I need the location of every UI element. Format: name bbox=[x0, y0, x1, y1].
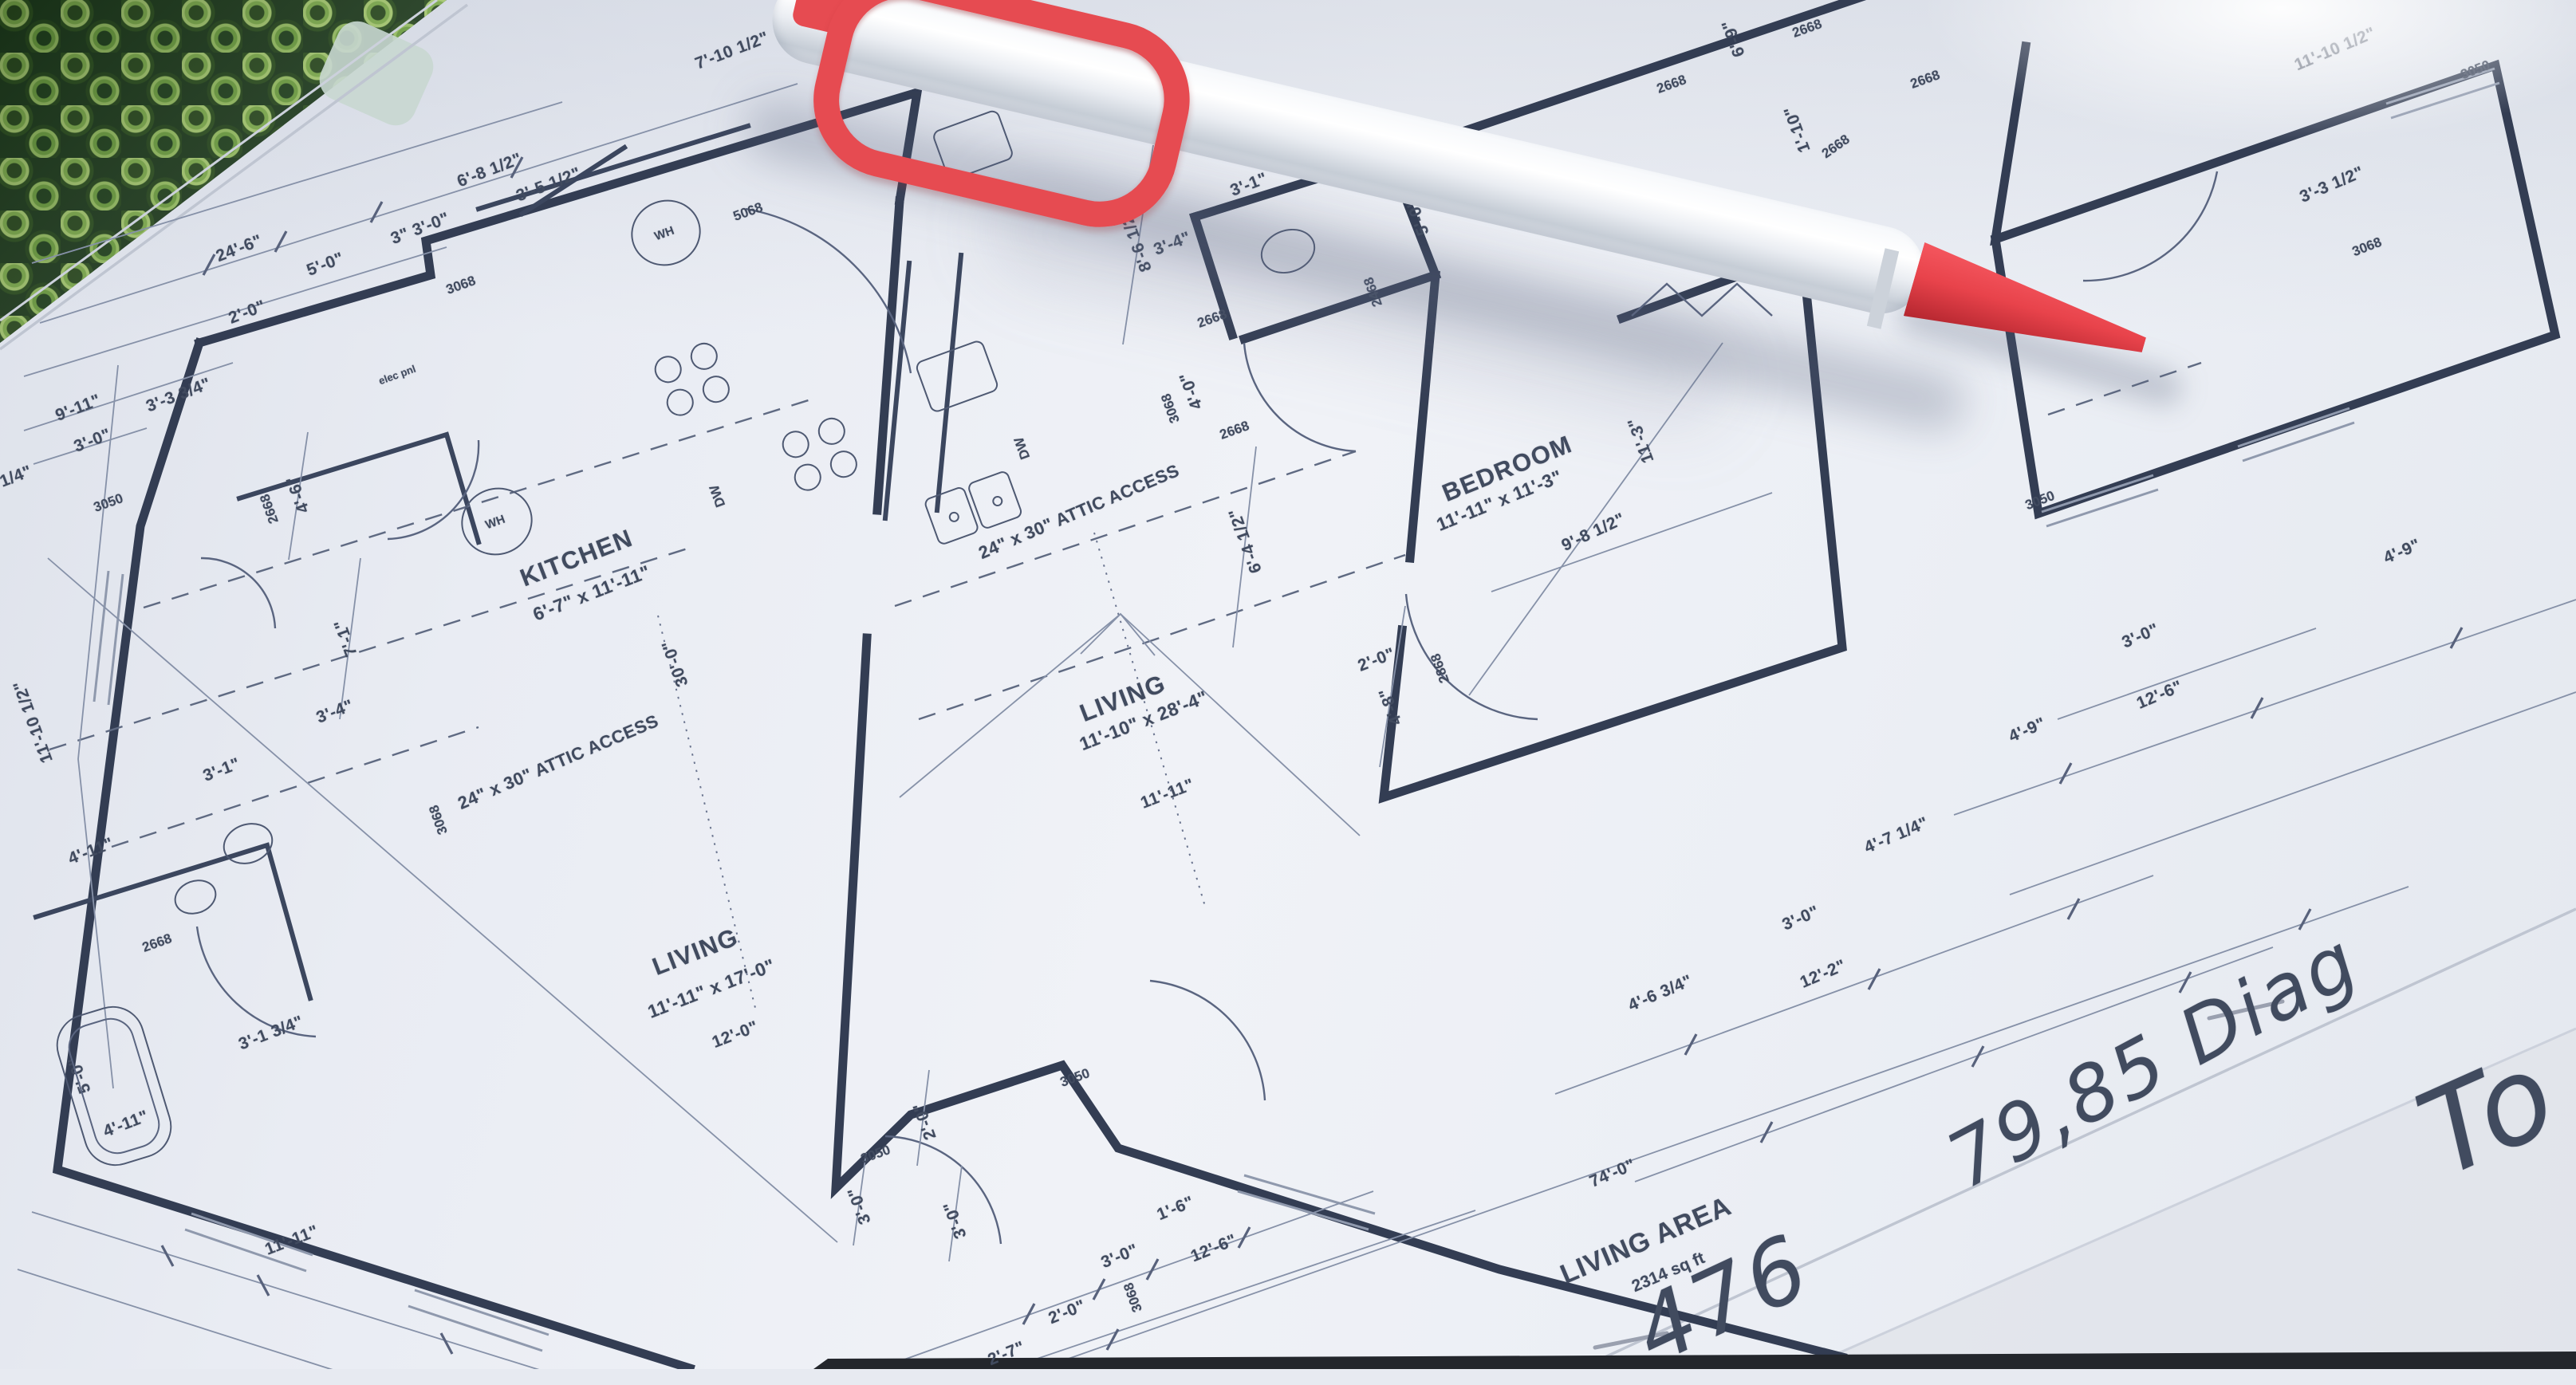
burner-circle bbox=[687, 339, 722, 374]
burner-circle bbox=[778, 427, 813, 462]
burner-circle bbox=[663, 385, 698, 420]
burner-circle bbox=[790, 460, 825, 495]
burner-circle bbox=[651, 352, 686, 387]
burner-circle bbox=[826, 447, 861, 482]
light-glare bbox=[1922, 0, 2576, 144]
burner-circle bbox=[814, 415, 849, 450]
burner-circle bbox=[699, 372, 734, 407]
floor-plan-drawing bbox=[0, 0, 2576, 1369]
dimension-lines bbox=[18, 84, 2576, 1369]
